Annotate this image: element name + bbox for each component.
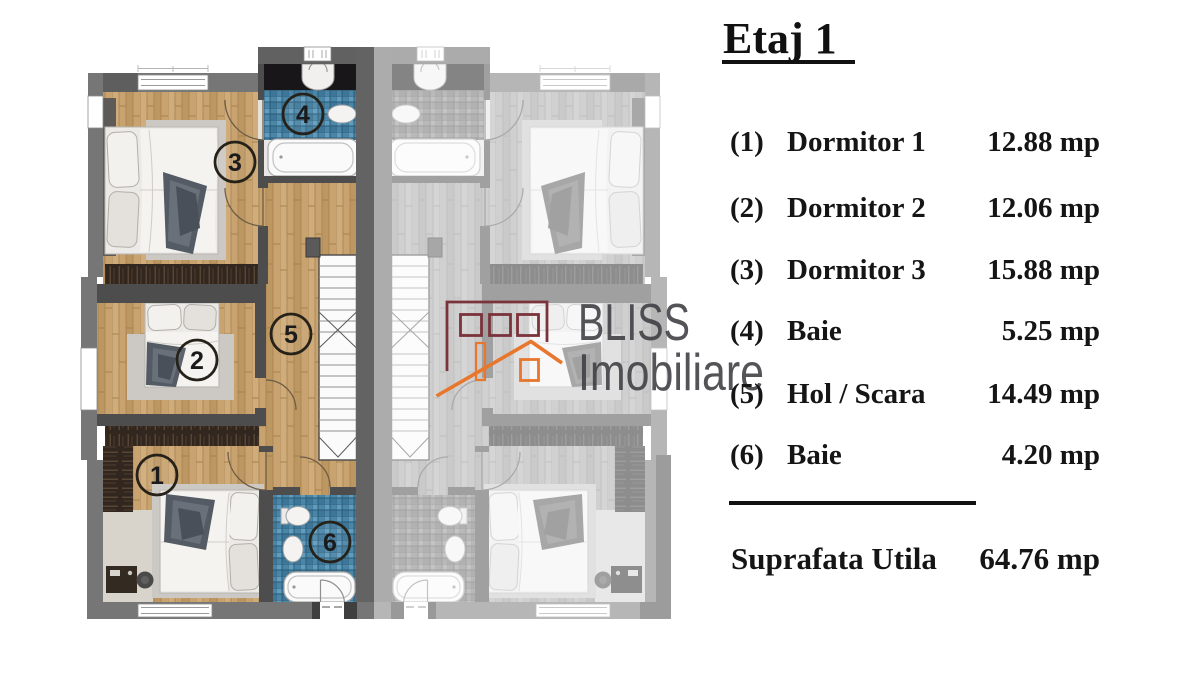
svg-text:5: 5: [284, 321, 298, 349]
svg-text:1: 1: [150, 462, 164, 490]
svg-text:4: 4: [296, 101, 310, 129]
svg-text:2: 2: [190, 347, 204, 375]
svg-text:6: 6: [323, 529, 337, 557]
svg-text:3: 3: [228, 149, 242, 177]
